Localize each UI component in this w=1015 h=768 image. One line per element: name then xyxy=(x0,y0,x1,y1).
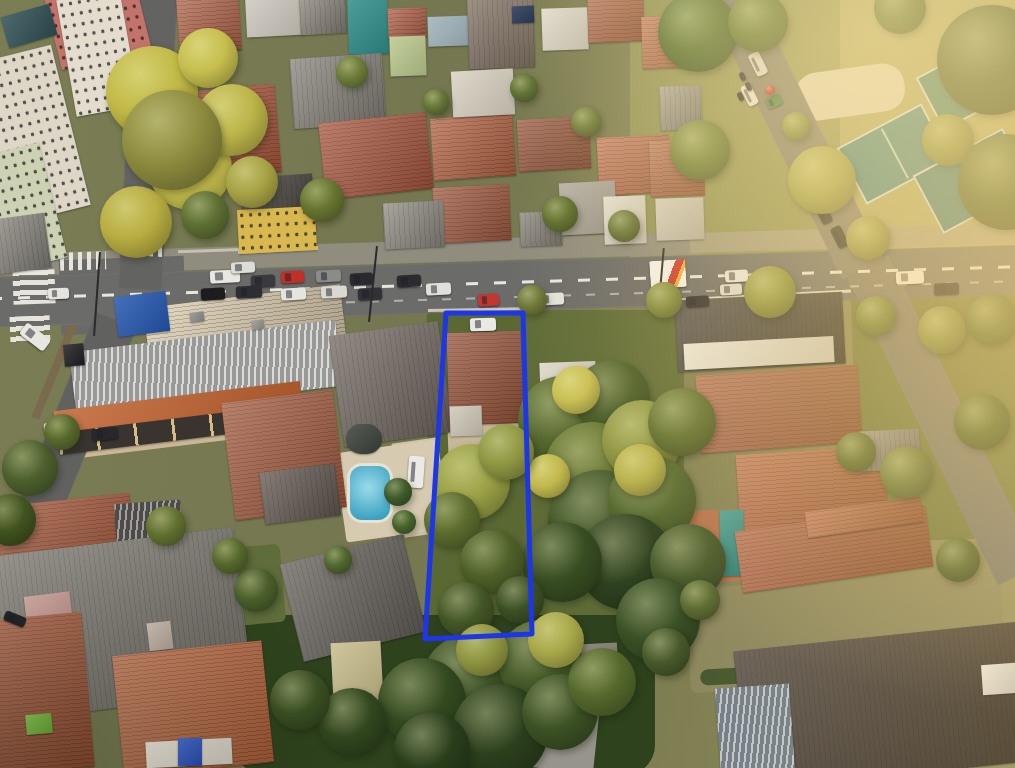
tree xyxy=(212,538,248,574)
tree xyxy=(836,432,876,472)
tree xyxy=(744,266,796,318)
tree xyxy=(336,56,368,88)
car xyxy=(316,269,342,282)
apartment-annex-roof xyxy=(0,213,52,275)
neighbor-hip-roof xyxy=(329,321,454,447)
suv xyxy=(896,270,925,284)
palm-tree xyxy=(324,546,352,574)
aerial-photo xyxy=(0,0,1015,768)
commercial-blue-sign xyxy=(114,291,170,337)
sunlit-tree xyxy=(478,424,534,480)
red-car xyxy=(478,293,500,306)
car xyxy=(201,287,226,300)
tree xyxy=(517,285,547,315)
house-roof xyxy=(451,68,515,117)
flowering-tree xyxy=(100,186,172,258)
car xyxy=(231,261,256,273)
rooftop-unit xyxy=(189,311,204,323)
teal-building xyxy=(347,0,389,55)
sunlit-tree xyxy=(614,444,666,496)
tree xyxy=(568,648,636,716)
palm-tree xyxy=(392,510,416,534)
tree xyxy=(181,191,229,239)
car xyxy=(426,282,452,295)
tree xyxy=(782,112,810,140)
house-roof xyxy=(0,612,95,768)
white-gable xyxy=(981,663,1015,695)
tree xyxy=(146,506,186,546)
car xyxy=(236,285,263,298)
solar-panels xyxy=(512,6,535,24)
car xyxy=(686,295,710,307)
tree xyxy=(456,624,508,676)
tree xyxy=(642,628,690,676)
tree xyxy=(270,670,330,730)
flowering-tree xyxy=(178,28,238,88)
tree xyxy=(788,146,856,214)
tree xyxy=(846,216,890,260)
lot-garage xyxy=(449,405,482,436)
green-house xyxy=(389,35,426,76)
tree xyxy=(856,296,896,336)
car xyxy=(48,288,69,300)
tree xyxy=(680,580,720,620)
sunlit-tree xyxy=(552,366,600,414)
house-roof xyxy=(299,0,347,35)
tree xyxy=(670,120,730,180)
car xyxy=(321,285,348,298)
house-roof xyxy=(655,197,704,241)
tree xyxy=(966,294,1015,346)
parked-car xyxy=(470,318,496,332)
car xyxy=(720,283,743,295)
tree xyxy=(122,90,222,190)
tree xyxy=(571,107,601,137)
palm-tree xyxy=(384,478,412,506)
tree xyxy=(954,394,1010,450)
tree xyxy=(918,306,966,354)
tree xyxy=(936,538,980,582)
car xyxy=(350,272,374,285)
tree xyxy=(608,210,640,242)
chimney xyxy=(146,621,173,652)
house-roof xyxy=(541,7,588,51)
hedge xyxy=(44,414,80,450)
house-roof xyxy=(695,364,862,453)
metal-roof xyxy=(715,684,795,768)
house-roof xyxy=(383,200,445,249)
tree xyxy=(648,388,716,456)
car xyxy=(397,274,422,287)
sunlit-tree xyxy=(528,612,584,668)
blue-tarp xyxy=(178,738,202,766)
red-car xyxy=(281,270,305,283)
green-skylight xyxy=(25,713,53,735)
tree xyxy=(542,196,578,232)
tree xyxy=(510,74,538,102)
tree xyxy=(880,446,932,498)
car xyxy=(281,287,307,300)
rooftop-unit xyxy=(251,319,264,329)
tree xyxy=(300,178,344,222)
tree xyxy=(496,576,544,624)
car xyxy=(725,269,749,282)
crosswalk xyxy=(12,269,55,304)
tree xyxy=(234,568,278,612)
tree xyxy=(226,156,278,208)
house-roof xyxy=(430,113,516,181)
store-sign xyxy=(63,343,85,367)
apartment-roof xyxy=(1,4,58,49)
patio-umbrella xyxy=(346,424,382,454)
tree xyxy=(646,282,682,318)
car xyxy=(934,282,960,295)
house-roof xyxy=(259,464,341,525)
house-roof xyxy=(587,0,645,43)
tree xyxy=(423,89,449,115)
house-roof xyxy=(245,0,305,37)
red-umbrella xyxy=(765,85,775,95)
hedge xyxy=(2,440,58,496)
house-roof xyxy=(387,7,426,38)
